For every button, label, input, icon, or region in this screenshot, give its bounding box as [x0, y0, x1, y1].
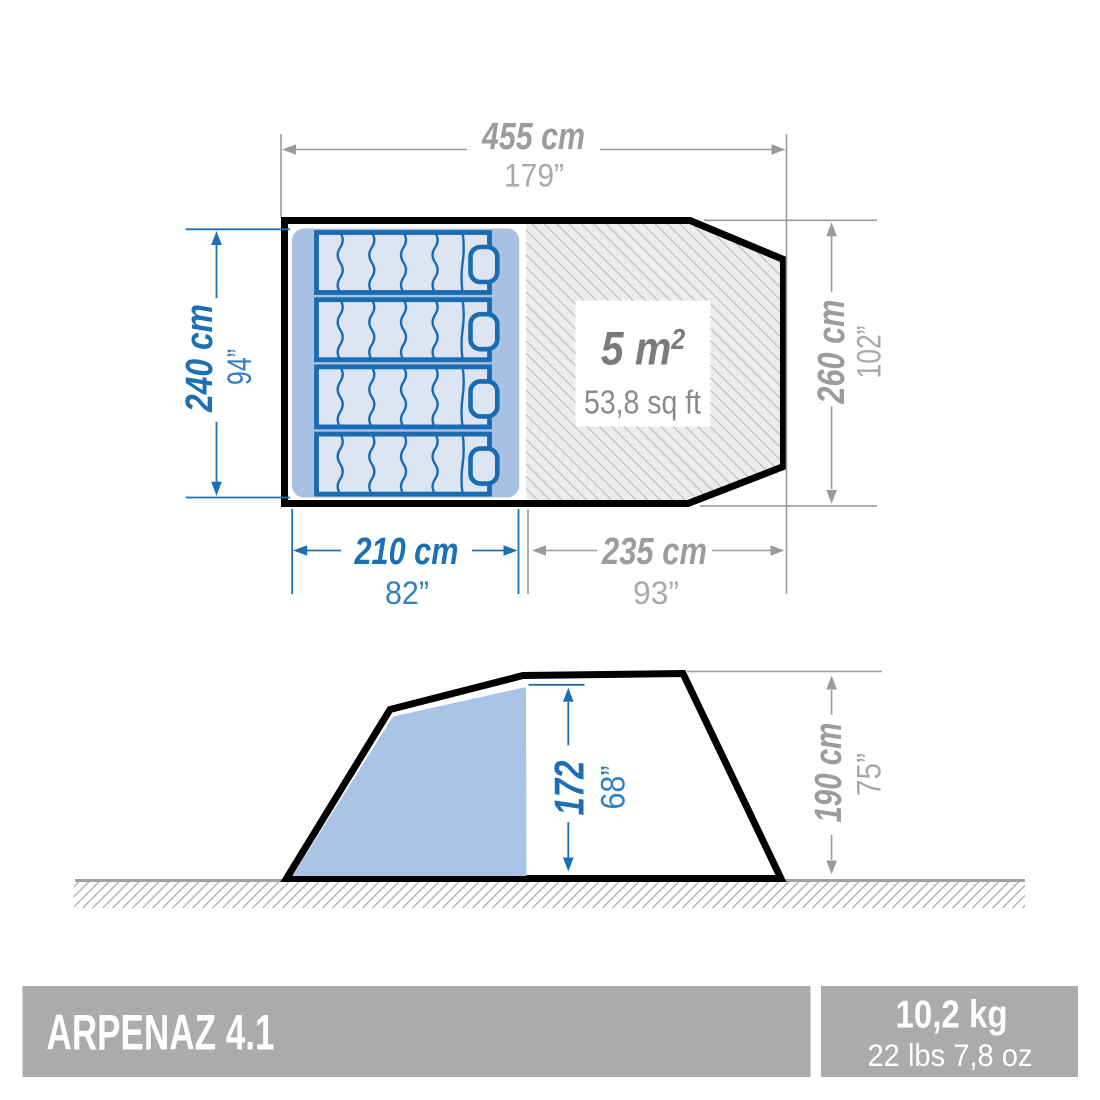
- svg-text:53,8 sq ft: 53,8 sq ft: [584, 384, 701, 421]
- svg-text:ARPENAZ 4.1: ARPENAZ 4.1: [47, 1004, 275, 1060]
- svg-text:240 cm: 240 cm: [179, 304, 221, 413]
- svg-text:82”: 82”: [385, 575, 429, 611]
- svg-text:235 cm: 235 cm: [601, 531, 707, 573]
- svg-text:210 cm: 210 cm: [354, 531, 459, 573]
- svg-text:190 cm: 190 cm: [808, 723, 850, 823]
- svg-text:179”: 179”: [504, 158, 564, 194]
- svg-text:172: 172: [546, 761, 593, 816]
- svg-text:22 lbs 7,8 oz: 22 lbs 7,8 oz: [868, 1037, 1033, 1073]
- svg-text:10,2 kg: 10,2 kg: [896, 994, 1008, 1037]
- svg-text:102”: 102”: [851, 326, 889, 379]
- svg-text:75”: 75”: [851, 753, 889, 796]
- svg-text:455 cm: 455 cm: [481, 116, 585, 158]
- svg-text:68”: 68”: [595, 766, 633, 810]
- svg-text:94”: 94”: [221, 349, 259, 385]
- svg-text:93”: 93”: [633, 575, 679, 611]
- svg-text:260 cm: 260 cm: [811, 300, 853, 405]
